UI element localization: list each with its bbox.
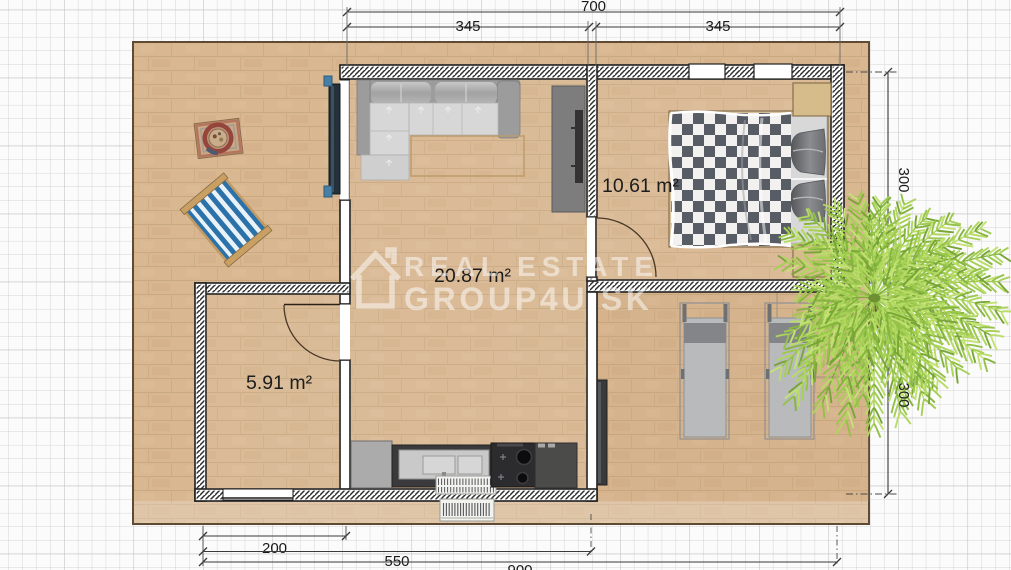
svg-text:900: 900 — [507, 562, 532, 570]
svg-text:345: 345 — [455, 18, 480, 35]
svg-text:300: 300 — [895, 167, 912, 192]
svg-text:345: 345 — [705, 18, 730, 35]
svg-text:10.61 m²: 10.61 m² — [602, 175, 679, 197]
svg-text:200: 200 — [262, 540, 287, 557]
svg-text:GROUP4U.SK: GROUP4U.SK — [404, 281, 649, 317]
svg-text:300: 300 — [895, 382, 912, 407]
svg-text:700: 700 — [581, 0, 606, 15]
svg-text:REAL ESTATE: REAL ESTATE — [404, 251, 653, 282]
svg-text:5.91 m²: 5.91 m² — [246, 372, 313, 394]
